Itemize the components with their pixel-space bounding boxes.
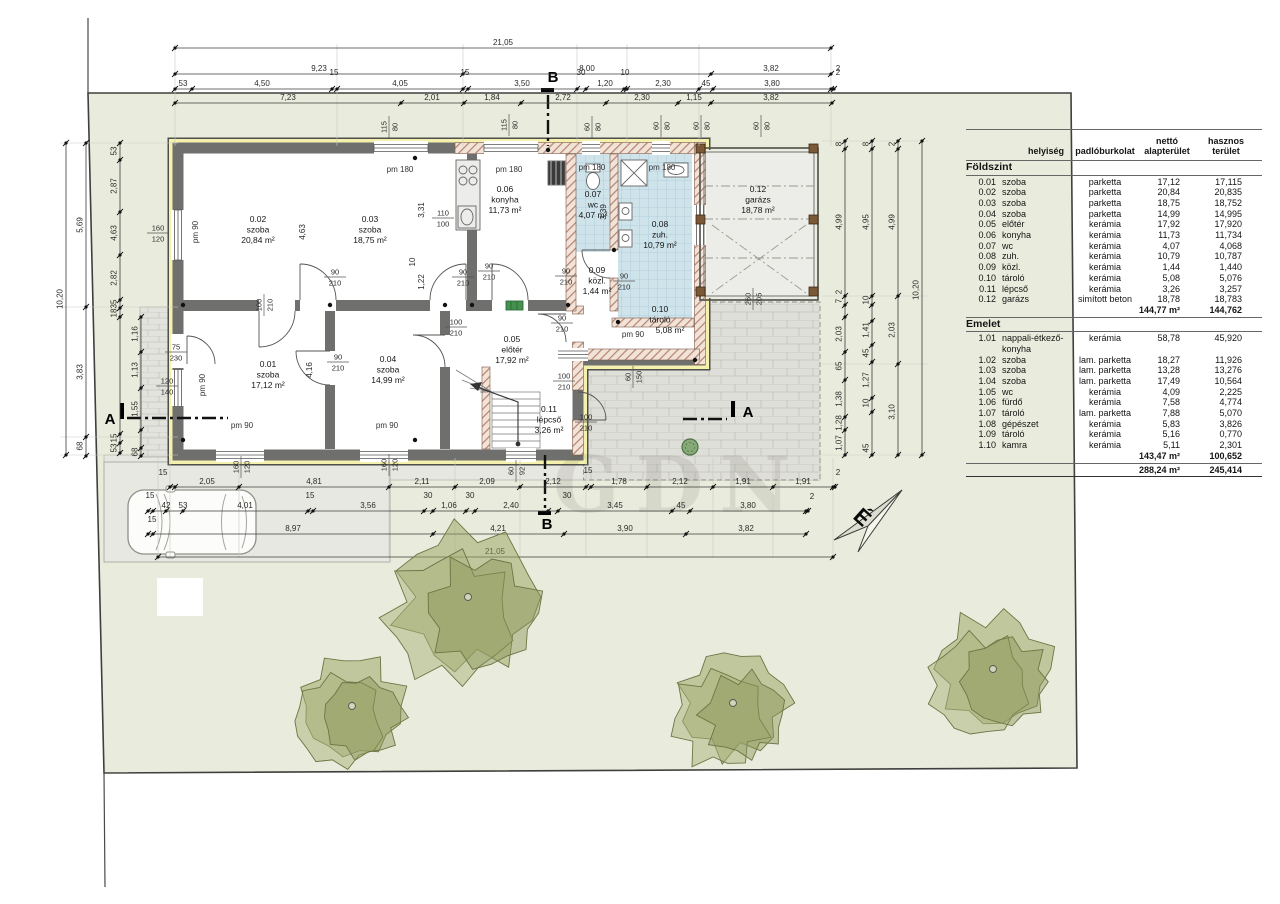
table-cell: 17,12 xyxy=(1138,177,1196,188)
table-cell: 100,652 xyxy=(1196,451,1256,462)
dimension-label: 15 xyxy=(148,515,157,524)
dimension-label: 1,06 xyxy=(441,501,457,510)
dimension-label: 30 xyxy=(563,491,572,500)
table-cell: 1.06 xyxy=(966,397,1002,408)
table-cell: wc xyxy=(1002,387,1072,398)
dimension-label: 21,05 xyxy=(493,38,514,47)
dimension-label: 3,10 xyxy=(888,404,897,420)
table-row: 0.03szobaparketta18,7518,752 xyxy=(966,198,1262,209)
table-row: 0.01szobaparketta17,1217,115 xyxy=(966,177,1262,188)
dimension-label: 18 xyxy=(110,308,119,317)
table-cell: lam. parketta xyxy=(1072,365,1138,376)
toilet xyxy=(587,173,600,190)
table-cell: zuh. xyxy=(1002,251,1072,262)
table-cell: 0.05 xyxy=(966,219,1002,230)
dimension-label: 1,78 xyxy=(611,477,627,486)
table-subtotal-row: 144,77 m²144,762 xyxy=(966,305,1262,316)
table-cell: nappali-étkező-konyha xyxy=(1002,333,1072,354)
window-label: pm 90 xyxy=(198,373,207,396)
section-letter-b: B xyxy=(548,69,559,86)
window-label: pm 180 xyxy=(649,163,676,172)
dimension-label: 60 xyxy=(652,122,661,130)
dimension-label: 60 xyxy=(624,373,633,381)
bush xyxy=(682,439,698,455)
table-cell: 11,926 xyxy=(1196,355,1256,366)
table-row: 0.06konyhakerámia11,7311,734 xyxy=(966,230,1262,241)
window-label: pm 90 xyxy=(376,421,399,430)
dimension-label: 120 xyxy=(243,461,252,474)
table-cell: előtér xyxy=(1002,219,1072,230)
table-cell: 1.08 xyxy=(966,419,1002,430)
dimension-label: 120 xyxy=(161,377,174,386)
table-cell: 7,88 xyxy=(1138,408,1196,419)
table-cell: 7,58 xyxy=(1138,397,1196,408)
dimension-label: 4,99 xyxy=(835,214,844,230)
table-row: 1.03szobalam. parketta13,2813,276 xyxy=(966,365,1262,376)
table-cell: fürdő xyxy=(1002,397,1072,408)
room-number: 0.05 xyxy=(504,334,521,344)
dimension-label: 210 xyxy=(560,278,573,287)
dimension-label: 160 xyxy=(380,459,389,472)
table-cell: 144,762 xyxy=(1196,305,1256,316)
table-cell: simított beton xyxy=(1072,294,1138,305)
dimension-label: 90 xyxy=(331,268,339,277)
room-area: 3,26 m² xyxy=(535,425,564,435)
dimension-label: 65 xyxy=(835,361,844,370)
dimension-label: 10 xyxy=(621,68,630,77)
interior-dimension: 10 xyxy=(408,257,417,266)
table-cell: tároló xyxy=(1002,408,1072,419)
table-cell: lam. parketta xyxy=(1072,355,1138,366)
dimension-label: 115 xyxy=(500,119,509,131)
table-header-cell: helyiség xyxy=(966,146,1072,157)
dimension-label: 4,05 xyxy=(392,79,408,88)
room-name: szoba xyxy=(247,225,270,235)
dimension-label: 80 xyxy=(663,122,672,130)
window-label: pm 90 xyxy=(622,330,645,339)
dimension-label: 1,91 xyxy=(795,477,811,486)
dimension-label: 160 xyxy=(232,461,241,474)
table-cell: 17,920 xyxy=(1196,219,1256,230)
table-cell: 5,16 xyxy=(1138,429,1196,440)
dimension-label: 3,50 xyxy=(514,79,530,88)
table-cell: parketta xyxy=(1072,177,1138,188)
room-name: lépcső xyxy=(537,415,562,425)
dimension-label: 1,13 xyxy=(131,362,140,378)
table-cell: 4,09 xyxy=(1138,387,1196,398)
table-cell: kerámia xyxy=(1072,333,1138,344)
dimension-label: 2,87 xyxy=(110,178,119,194)
table-row: 1.10kamrakerámia5,112,301 xyxy=(966,440,1262,451)
dimension-label: 205 xyxy=(755,293,764,306)
section-letter-a: A xyxy=(105,411,116,428)
table-cell: tároló xyxy=(1002,429,1072,440)
dimension-label: 1,41 xyxy=(862,322,871,338)
dimension-label: 80 xyxy=(391,123,400,131)
table-cell: 2,225 xyxy=(1196,387,1256,398)
room-area: 20,84 m² xyxy=(241,235,275,245)
dimension-label: 1,16 xyxy=(131,326,140,342)
table-cell: 1,44 xyxy=(1138,262,1196,273)
dimension-label: 2,12 xyxy=(672,477,688,486)
dimension-label: 2,11 xyxy=(415,477,431,486)
dimension-label: 4,01 xyxy=(237,501,253,510)
dimension-label: 10 xyxy=(862,398,871,407)
table-cell: kerámia xyxy=(1072,419,1138,430)
table-cell: 0.06 xyxy=(966,230,1002,241)
dimension-label: 8 xyxy=(835,141,844,146)
table-cell: 1.10 xyxy=(966,440,1002,451)
dimension-label: 45 xyxy=(677,501,686,510)
room-name: tároló xyxy=(649,315,671,325)
table-cell: kerámia xyxy=(1072,284,1138,295)
dimension-label: 1,07 xyxy=(835,435,844,451)
table-cell: 2,301 xyxy=(1196,440,1256,451)
dimension-label: 4,95 xyxy=(862,214,871,230)
dryer xyxy=(619,230,632,247)
dimension-label: 35 xyxy=(110,299,119,308)
dimension-label: 2,05 xyxy=(199,477,215,486)
table-cell: 4,07 xyxy=(1138,241,1196,252)
white-patch xyxy=(157,578,203,616)
table-cell: 1.02 xyxy=(966,355,1002,366)
table-cell: lépcső xyxy=(1002,284,1072,295)
room-area: 14,99 m² xyxy=(371,375,405,385)
dimension-label: 3,82 xyxy=(763,93,779,102)
room-number: 0.01 xyxy=(260,359,277,369)
dimension-label: 90 xyxy=(620,272,628,281)
dimension-label: 3,83 xyxy=(76,364,85,380)
dimension-label: 210 xyxy=(483,273,496,282)
table-cell: 18,75 xyxy=(1138,198,1196,209)
dimension-label: 140 xyxy=(161,388,174,397)
dimension-label: 10,20 xyxy=(56,288,65,309)
table-cell: 58,78 xyxy=(1138,333,1196,344)
dimension-label: 210 xyxy=(329,279,342,288)
table-cell: szoba xyxy=(1002,177,1072,188)
dimension-label: 8 xyxy=(862,141,871,146)
table-cell: 5,076 xyxy=(1196,273,1256,284)
table-cell: 20,84 xyxy=(1138,187,1196,198)
dimension-label: 4,63 xyxy=(110,225,119,241)
dimension-label: 90 xyxy=(558,314,566,323)
dimension-label: 68 xyxy=(131,447,140,456)
table-cell: kerámia xyxy=(1072,440,1138,451)
table-cell: 4,774 xyxy=(1196,397,1256,408)
table-cell: kerámia xyxy=(1072,251,1138,262)
dimension-label: 2,72 xyxy=(555,93,571,102)
dimension-label: 1,20 xyxy=(597,79,613,88)
dimension-label: 60 xyxy=(752,122,761,130)
table-cell: 5,08 xyxy=(1138,273,1196,284)
garage xyxy=(696,144,818,300)
dimension-label: 2 xyxy=(836,68,841,77)
dimension-label: 1,28 xyxy=(835,415,844,431)
dimension-label: 2,82 xyxy=(110,270,119,286)
table-row: 1.01nappali-étkező-konyhakerámia58,7845,… xyxy=(966,333,1262,354)
dimension-label: 2 xyxy=(810,492,815,501)
table-cell: 0.12 xyxy=(966,294,1002,305)
table-cell: 1.09 xyxy=(966,429,1002,440)
table-cell: parketta xyxy=(1072,209,1138,220)
window-label: pm 90 xyxy=(231,421,254,430)
dimension-label: 7 xyxy=(835,298,844,303)
window-label: pm 180 xyxy=(496,165,523,174)
dimension-label: 1,15 xyxy=(686,93,702,102)
table-cell: 14,99 xyxy=(1138,209,1196,220)
dimension-label: 3,45 xyxy=(607,501,623,510)
table-header: helyiségpadlóburkolatnettó alapterületha… xyxy=(966,131,1262,159)
table-row: 1.08gépészetkerámia5,833,826 xyxy=(966,419,1262,430)
table-cell: 10,564 xyxy=(1196,376,1256,387)
room-name: garázs xyxy=(745,195,771,205)
table-cell: 0.01 xyxy=(966,177,1002,188)
dimension-label: 110 xyxy=(437,209,449,218)
dimension-label: 15 xyxy=(110,433,119,442)
dimension-label: 3,82 xyxy=(763,64,779,73)
dimension-label: 45 xyxy=(702,79,711,88)
dimension-label: 1,84 xyxy=(484,93,500,102)
dimension-label: 120 xyxy=(152,235,165,244)
table-header-cell: padlóburkolat xyxy=(1072,146,1138,157)
section-letter-a: A xyxy=(743,404,754,421)
dimension-label: 2,30 xyxy=(634,93,650,102)
table-cell: 288,24 m² xyxy=(1138,465,1196,476)
dimension-label: 210 xyxy=(556,325,569,334)
room-name: wc xyxy=(587,200,599,210)
table-cell: kerámia xyxy=(1072,273,1138,284)
table-cell: 245,414 xyxy=(1196,465,1256,476)
dimension-label: 260 xyxy=(744,293,753,306)
table-row: 0.12garázssimított beton18,7818,783 xyxy=(966,294,1262,305)
dimension-label: 90 xyxy=(485,262,493,271)
dimension-label: 15 xyxy=(330,68,339,77)
table-cell: 0.09 xyxy=(966,262,1002,273)
room-name: közl. xyxy=(588,276,605,286)
dimension-label: 80 xyxy=(594,123,603,131)
table-cell: 5,83 xyxy=(1138,419,1196,430)
room-name: szoba xyxy=(257,370,280,380)
table-cell: 20,835 xyxy=(1196,187,1256,198)
dimension-label: 15 xyxy=(159,468,168,477)
dimension-label: 210 xyxy=(266,299,275,312)
table-cell: 18,752 xyxy=(1196,198,1256,209)
dimension-label: 90 xyxy=(334,353,342,362)
dimension-label: 100 xyxy=(437,220,450,229)
table-cell: gépészet xyxy=(1002,419,1072,430)
table-row: 1.07tárolólam. parketta7,885,070 xyxy=(966,408,1262,419)
room-name: előtér xyxy=(501,345,522,355)
table-cell: 4,068 xyxy=(1196,241,1256,252)
dimension-label: 160 xyxy=(152,224,165,233)
dimension-label: 10,20 xyxy=(912,279,921,300)
table-cell: 11,73 xyxy=(1138,230,1196,241)
dimension-label: 5,69 xyxy=(76,217,85,233)
dimension-label: 53 xyxy=(110,443,119,452)
table-cell: 1.01 xyxy=(966,333,1002,344)
table-subtotal-row: 143,47 m²100,652 xyxy=(966,451,1262,462)
table-row: 0.05előtérkerámia17,9217,920 xyxy=(966,219,1262,230)
dimension-label: 45 xyxy=(862,443,871,452)
room-number: 0.03 xyxy=(362,214,379,224)
room-area: 18,75 m² xyxy=(353,235,387,245)
dimension-label: 2 xyxy=(835,289,844,294)
dimension-label: 210 xyxy=(332,364,345,373)
room-number: 0.10 xyxy=(652,304,669,314)
table-section-title: Földszint xyxy=(966,162,1262,174)
table-cell: parketta xyxy=(1072,187,1138,198)
table-cell: szoba xyxy=(1002,355,1072,366)
table-cell: kerámia xyxy=(1072,241,1138,252)
table-cell: 18,783 xyxy=(1196,294,1256,305)
dimension-label: 2 xyxy=(888,141,897,146)
table-row: 0.10tárolókerámia5,085,076 xyxy=(966,273,1262,284)
table-cell: 10,79 xyxy=(1138,251,1196,262)
room-area: 17,12 m² xyxy=(251,380,285,390)
dimension-label: 68 xyxy=(76,441,85,450)
interior-dimension: 4,16 xyxy=(305,362,314,378)
table-cell: 0.03 xyxy=(966,198,1002,209)
table-row: 0.09közl.kerámia1,441,440 xyxy=(966,262,1262,273)
table-cell: kerámia xyxy=(1072,397,1138,408)
table-cell: szoba xyxy=(1002,209,1072,220)
room-number: 0.04 xyxy=(380,354,397,364)
dimension-label: 4,50 xyxy=(254,79,270,88)
table-cell: 3,26 xyxy=(1138,284,1196,295)
window-label: pm 90 xyxy=(191,220,200,243)
table-cell: kerámia xyxy=(1072,230,1138,241)
dimension-label: 4,21 xyxy=(490,524,506,533)
table-cell: parketta xyxy=(1072,198,1138,209)
table-cell: tároló xyxy=(1002,273,1072,284)
dimension-label: 60 xyxy=(692,122,701,130)
dimension-label: 3,90 xyxy=(617,524,633,533)
interior-dimension: 4,63 xyxy=(298,224,307,240)
table-cell: 14,995 xyxy=(1196,209,1256,220)
table-cell: 17,92 xyxy=(1138,219,1196,230)
dimension-label: 60 xyxy=(583,123,592,131)
interior-dimension: 3,31 xyxy=(417,202,426,218)
dimension-label: 210 xyxy=(618,283,631,292)
room-name: konyha xyxy=(491,195,519,205)
room-number: 0.07 xyxy=(585,189,602,199)
dimension-label: 30 xyxy=(424,491,433,500)
dimension-label: 230 xyxy=(170,354,183,363)
dimension-label: 60 xyxy=(507,467,516,475)
table-cell: kerámia xyxy=(1072,387,1138,398)
table-cell: 1,440 xyxy=(1196,262,1256,273)
room-area: 5,08 m² xyxy=(656,325,685,335)
table-cell: szoba xyxy=(1002,365,1072,376)
table-row: 1.04szobalam. parketta17,4910,564 xyxy=(966,376,1262,387)
table-cell: 0,770 xyxy=(1196,429,1256,440)
room-number: 0.11 xyxy=(541,404,557,414)
table-cell: garázs xyxy=(1002,294,1072,305)
dimension-label: 1,38 xyxy=(835,391,844,407)
table-cell: 3,826 xyxy=(1196,419,1256,430)
table-cell: 0.11 xyxy=(966,284,1002,295)
dimension-label: 7,23 xyxy=(280,93,296,102)
table-cell: lam. parketta xyxy=(1072,376,1138,387)
dimension-label: 15 xyxy=(584,466,593,475)
room-area: 1,44 m² xyxy=(583,286,612,296)
table-cell: kerámia xyxy=(1072,262,1138,273)
dimension-label: 2,03 xyxy=(835,326,844,342)
dimension-label: 15 xyxy=(461,68,470,77)
table-cell: szoba xyxy=(1002,187,1072,198)
dimension-label: 150 xyxy=(635,371,644,384)
dimension-label: 4,99 xyxy=(888,214,897,230)
dimension-label: 4,81 xyxy=(306,477,322,486)
room-name: szoba xyxy=(359,225,382,235)
section-letter-b: B xyxy=(542,516,553,533)
table-cell: 1.07 xyxy=(966,408,1002,419)
dimension-label: 9,23 xyxy=(311,64,327,73)
table-row: 0.11lépcsőkerámia3,263,257 xyxy=(966,284,1262,295)
room-number: 0.06 xyxy=(497,184,514,194)
table-cell: 143,47 m² xyxy=(1138,451,1196,462)
dimension-label: 3,80 xyxy=(740,501,756,510)
table-header-cell: nettó alapterület xyxy=(1138,136,1196,157)
table-cell: 5,11 xyxy=(1138,440,1196,451)
table-row: 1.09tárolókerámia5,160,770 xyxy=(966,429,1262,440)
dimension-label: 210 xyxy=(450,329,463,338)
table-row: 1.06fürdőkerámia7,584,774 xyxy=(966,397,1262,408)
dimension-label: 8,97 xyxy=(285,524,301,533)
table-cell: 3,257 xyxy=(1196,284,1256,295)
table-row: 0.07wckerámia4,074,068 xyxy=(966,241,1262,252)
table-cell: 0.07 xyxy=(966,241,1002,252)
table-cell: 17,115 xyxy=(1196,177,1256,188)
dimension-label: 15 xyxy=(146,491,155,500)
dimension-label: 53 xyxy=(110,146,119,155)
dimension-label: 115 xyxy=(380,121,389,133)
dimension-label: 90 xyxy=(562,267,570,276)
room-number: 0.02 xyxy=(250,214,267,224)
area-table: helyiségpadlóburkolatnettó alapterületha… xyxy=(966,128,1262,478)
room-area: 10,79 m² xyxy=(643,240,677,250)
table-cell: szoba xyxy=(1002,198,1072,209)
table-cell: 18,78 xyxy=(1138,294,1196,305)
window-label: pm 180 xyxy=(387,165,414,174)
room-name: szoba xyxy=(377,365,400,375)
window-label: pm 180 xyxy=(579,163,606,172)
room-name: zuh. xyxy=(652,230,668,240)
table-row: 0.08zuh.kerámia10,7910,787 xyxy=(966,251,1262,262)
dimension-label: 100 xyxy=(450,318,463,327)
dimension-label: 2,30 xyxy=(655,79,671,88)
dimension-label: 30 xyxy=(466,491,475,500)
kitchen-cabinet xyxy=(548,161,565,185)
dimension-label: 53 xyxy=(179,501,188,510)
dimension-label: 2,01 xyxy=(424,93,440,102)
dimension-label: 42 xyxy=(162,501,171,510)
dimension-label: 90 xyxy=(459,268,467,277)
table-cell: 144,77 m² xyxy=(1138,305,1196,316)
table-cell: 11,734 xyxy=(1196,230,1256,241)
table-cell: 17,49 xyxy=(1138,376,1196,387)
table-header-cell: hasznos terület xyxy=(1196,136,1256,157)
boundary-line xyxy=(104,773,105,887)
table-row: 1.02szobalam. parketta18,2711,926 xyxy=(966,355,1262,366)
table-cell: 13,28 xyxy=(1138,365,1196,376)
table-cell: 13,276 xyxy=(1196,365,1256,376)
table-cell: közl. xyxy=(1002,262,1072,273)
dimension-label: 210 xyxy=(457,279,470,288)
dimension-label: 2,09 xyxy=(479,477,495,486)
table-cell: 5,070 xyxy=(1196,408,1256,419)
table-grandtotal-row: 288,24 m²245,414 xyxy=(966,465,1262,476)
